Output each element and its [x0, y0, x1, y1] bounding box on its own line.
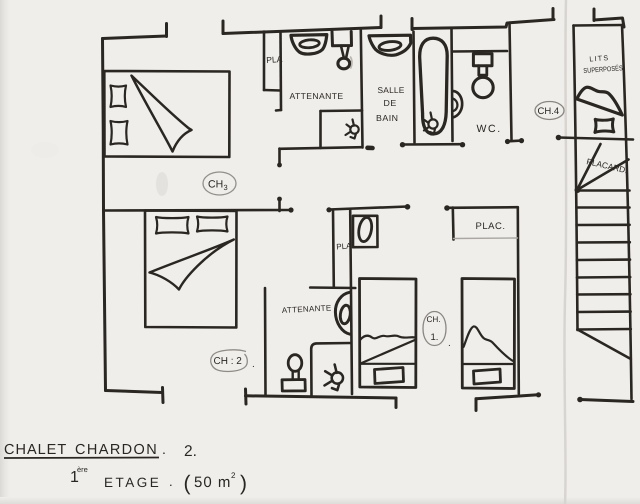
svg-text:SALLE: SALLE	[378, 85, 405, 95]
svg-text:1.: 1.	[431, 332, 439, 343]
svg-text:CH: CH	[208, 179, 223, 191]
svg-text:.: .	[162, 441, 166, 457]
svg-text:PLA: PLA	[266, 54, 283, 65]
svg-text:50 m: 50 m	[194, 474, 231, 491]
svg-text:.: .	[448, 338, 451, 349]
svg-text:(: (	[184, 472, 191, 495]
svg-text:CH.: CH.	[427, 315, 441, 324]
svg-text:2: 2	[231, 471, 236, 480]
svg-text:DE: DE	[384, 98, 397, 108]
svg-text:PLAC.: PLAC.	[476, 221, 506, 232]
svg-text:CH : 2: CH : 2	[214, 356, 243, 367]
svg-text:): )	[240, 472, 247, 495]
svg-text:PLA: PLA	[336, 241, 352, 251]
svg-text:ETAGE: ETAGE	[104, 475, 161, 490]
svg-text:CHARDON: CHARDON	[75, 442, 158, 458]
svg-text:CH.4: CH.4	[538, 106, 560, 117]
svg-text:ATTENANTE: ATTENANTE	[290, 91, 344, 101]
svg-text:.: .	[169, 474, 173, 489]
svg-text:ère: ère	[77, 465, 88, 474]
svg-text:3: 3	[224, 183, 228, 192]
svg-text:WC.: WC.	[477, 123, 502, 135]
svg-text:2.: 2.	[184, 443, 197, 460]
svg-text:CHALET: CHALET	[4, 442, 67, 458]
svg-text:LITS: LITS	[589, 53, 610, 63]
svg-text:.: .	[252, 359, 255, 370]
svg-text:BAIN: BAIN	[376, 113, 399, 123]
